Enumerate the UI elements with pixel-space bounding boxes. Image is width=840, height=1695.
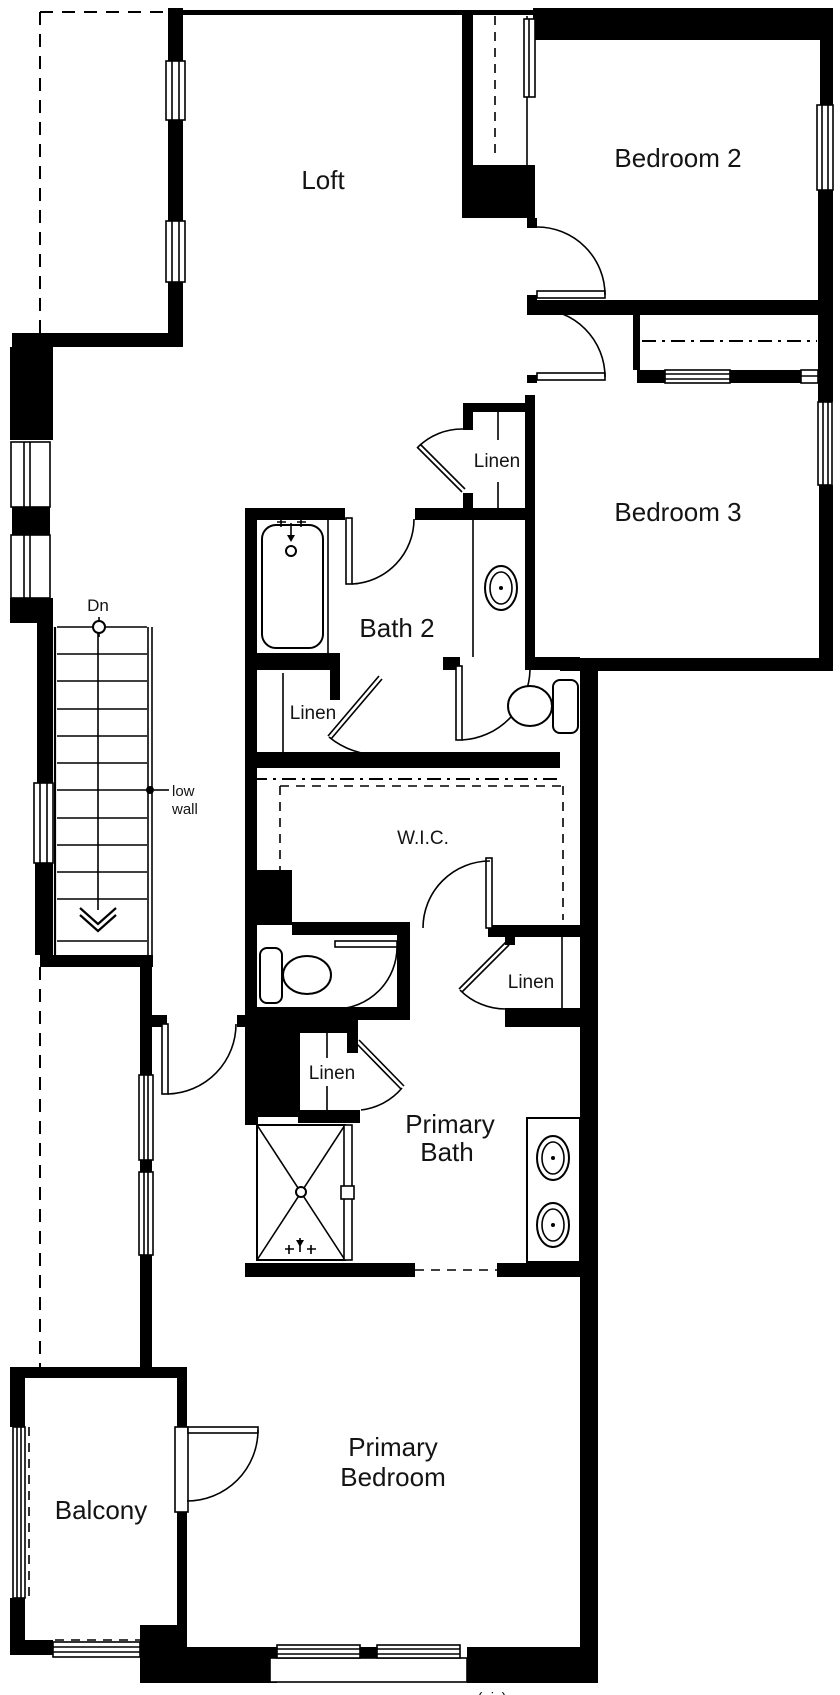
balcony-railing-bottom: [53, 1640, 140, 1657]
window-sill-primary-bedroom: [270, 1658, 467, 1682]
bathtub-icon: [262, 520, 328, 653]
door-bath2-entry: [346, 518, 414, 584]
balcony-railing-left: [13, 1427, 29, 1598]
door-bedroom2: [537, 227, 605, 298]
wic-shelf-dashed-outline: [253, 779, 563, 925]
room-label-bath2: Bath 2: [359, 613, 434, 643]
floor-plan-page: Loft Bedroom 2 Bedroom 3 Bath 2 Linen Li…: [0, 0, 840, 1695]
window: [11, 535, 50, 598]
window: [377, 1645, 460, 1658]
shower-icon: [257, 1125, 354, 1260]
dashed-open-to-below-upper: [40, 12, 168, 333]
low-wall-leader: [146, 786, 169, 794]
annotation-low-wall-line2: wall: [171, 801, 198, 818]
door-wic: [423, 858, 492, 928]
stair-direction-arrow: [80, 908, 116, 931]
annotation-low-wall-line1: low: [172, 783, 195, 800]
bedroom2-closet-panel: [524, 16, 535, 165]
window: [166, 221, 185, 282]
room-label-primary-bedroom-line2: Bedroom: [340, 1462, 446, 1492]
primary-vanity-icon: [527, 1118, 580, 1262]
room-label-balcony: Balcony: [55, 1495, 148, 1525]
primary-toilet-icon: [260, 948, 331, 1003]
window: [139, 1075, 153, 1160]
closet-label-linen-right: Linen: [508, 972, 555, 993]
room-label-loft: Loft: [301, 165, 345, 195]
door-linen-lower: [356, 1040, 404, 1110]
room-label-primary-bath-line2: Bath: [420, 1137, 474, 1167]
stairs-label-dn: Dn: [87, 596, 109, 615]
window: [34, 783, 53, 863]
bath2-sink-icon: [485, 566, 517, 610]
window: [166, 61, 185, 120]
closet-label-linen-mid: Linen: [290, 703, 337, 724]
door-linen-right: [459, 942, 509, 1009]
window: [818, 402, 832, 485]
room-label-primary-bedroom-line1: Primary: [348, 1432, 438, 1462]
stair-start-symbol: [93, 617, 105, 637]
door-linen-top: [417, 429, 465, 492]
door-primary-suite-entry: [162, 1024, 236, 1094]
door-bedroom3: [537, 309, 605, 380]
partial-bottom-note: (nic): [477, 1690, 506, 1695]
window: [11, 442, 50, 507]
room-label-wic: W.I.C.: [397, 828, 449, 849]
window: [139, 1172, 153, 1255]
door-primary-toilet-room: [335, 941, 397, 1009]
staircase-down: [55, 617, 152, 955]
room-label-bedroom3: Bedroom 3: [614, 497, 741, 527]
interior-walls: [245, 13, 833, 1277]
room-label-bedroom2: Bedroom 2: [614, 143, 741, 173]
door-balcony: [175, 1427, 258, 1512]
room-label-primary-bath-line1: Primary: [405, 1109, 495, 1139]
bath2-toilet-icon: [508, 680, 578, 733]
closet-label-linen-top: Linen: [474, 451, 521, 472]
window: [277, 1645, 360, 1658]
closet-label-linen-lower: Linen: [309, 1063, 356, 1084]
floor-plan-canvas: Loft Bedroom 2 Bedroom 3 Bath 2 Linen Li…: [0, 0, 840, 1695]
window: [817, 105, 833, 190]
